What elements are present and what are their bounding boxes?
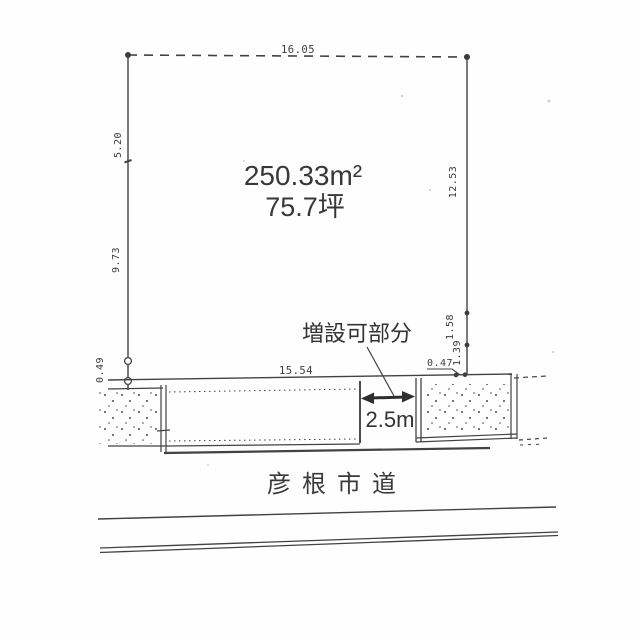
expandable-part-leader-line	[367, 347, 394, 396]
boundary-point-right-upper	[465, 311, 470, 316]
dim-right-upper-label: 12.53	[448, 166, 459, 199]
left-boundary-tick	[125, 160, 132, 163]
road-edge-line-far-1	[100, 532, 558, 548]
right-gravel-right-double-line	[511, 374, 517, 439]
boundary-point-left-bottom	[125, 378, 132, 385]
dim-right-mid-label: 1.58	[445, 314, 456, 340]
gravel-area-left	[97, 392, 159, 444]
dim-left-lower-label: 9.73	[111, 247, 122, 273]
expandable-width-arrow-shaft	[371, 397, 406, 398]
central-strip-bottom-line	[167, 444, 360, 446]
expandable-width-label: 2.5m	[366, 407, 415, 432]
left-gravel-top-line	[108, 388, 163, 389]
central-strip-bottom-dotted-line	[169, 439, 358, 441]
dim-frontage-label: 15.54	[279, 365, 313, 377]
structure-base-line	[164, 448, 490, 453]
road-edge-line-near	[98, 507, 556, 519]
gap-right-edge-double-line	[416, 378, 421, 442]
dim-left-bottom-label: 0.49	[95, 357, 106, 383]
boundary-point-left-lower	[125, 358, 132, 365]
dim-left-upper-label: 5.20	[113, 132, 124, 158]
site-plan-drawing: 16.05 5.20 9.73 0.49 12.53 1.58 1.39 0.4…	[0, 0, 640, 640]
central-strip-top-dotted-line	[169, 389, 358, 392]
right-bottom-dashed-extension	[519, 438, 547, 440]
dim-top-label: 16.05	[281, 44, 315, 56]
dim-right-lower-label: 1.39	[452, 340, 463, 366]
road-edge-line-far-2	[100, 536, 558, 553]
area-tsubo-label: 75.7坪	[265, 192, 345, 222]
dim-right-bottom-label: 0.47	[427, 358, 453, 369]
expandable-width-arrowhead-right	[402, 391, 415, 403]
area-sqm-label: 250.33m²	[244, 160, 362, 191]
right-bottom-dash-marks	[520, 444, 544, 445]
site-plan-page: 16.05 5.20 9.73 0.49 12.53 1.58 1.39 0.4…	[0, 0, 640, 640]
right-gravel-bottom-double-line	[416, 434, 517, 442]
frontage-top-line-dashed-extension	[514, 376, 547, 378]
road-name-label: 彦根市道	[267, 471, 407, 498]
expandable-part-label: 増設可部分	[302, 321, 412, 346]
gravel-area-right	[426, 384, 509, 432]
boundary-point-right-mid	[465, 343, 470, 348]
expandable-width-arrowhead-left	[361, 393, 374, 405]
left-divider-double-line	[161, 385, 166, 452]
